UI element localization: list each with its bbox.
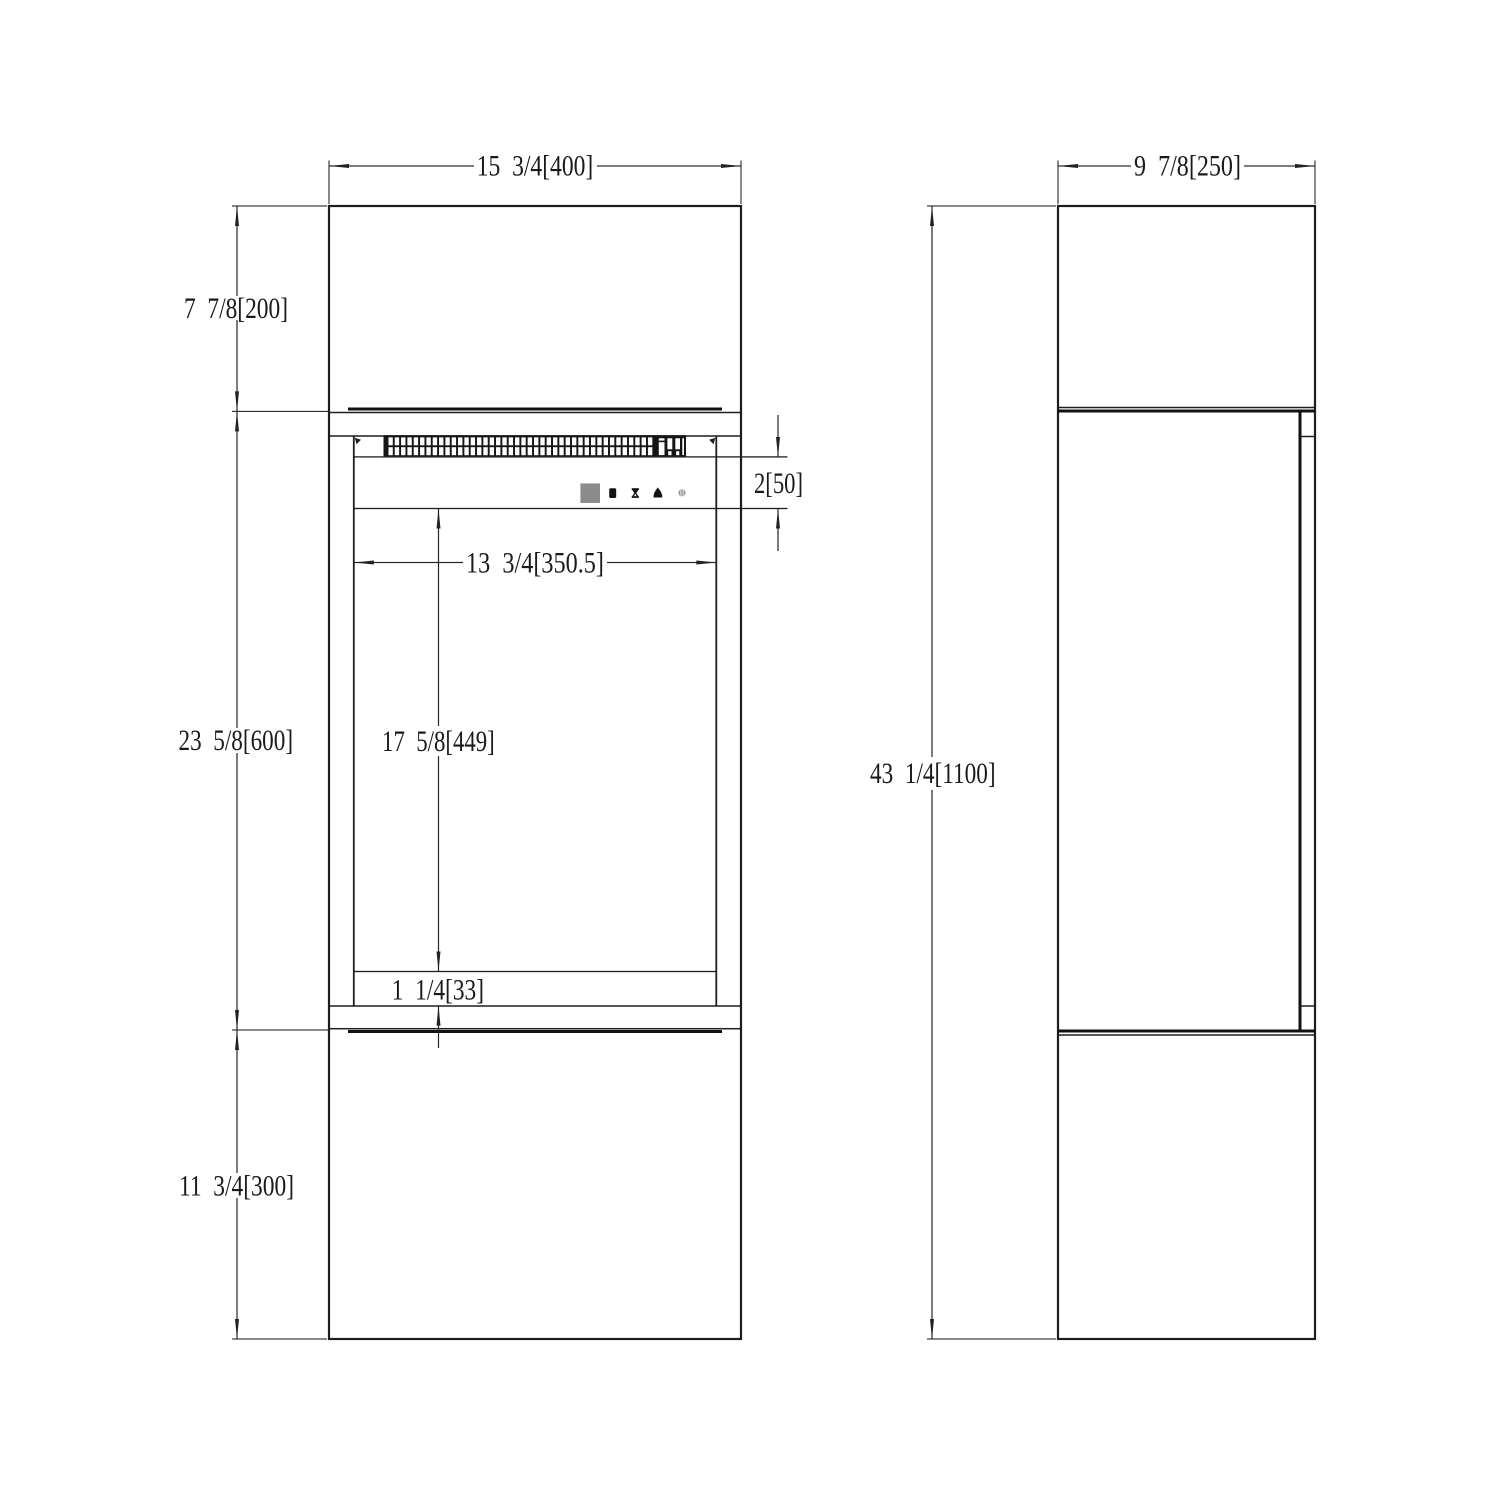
svg-text:9 7/8[250]: 9 7/8[250] [1134, 150, 1241, 183]
svg-text:23 5/8[600]: 23 5/8[600] [179, 724, 294, 757]
svg-text:2[50]: 2[50] [754, 467, 803, 500]
svg-text:43 1/4[1100]: 43 1/4[1100] [870, 757, 996, 790]
svg-text:1 1/4[33]: 1 1/4[33] [392, 973, 484, 1006]
svg-text:11 3/4[300]: 11 3/4[300] [179, 1169, 294, 1202]
svg-text:13 3/4[350.5]: 13 3/4[350.5] [466, 546, 604, 579]
svg-text:7 7/8[200]: 7 7/8[200] [184, 292, 288, 325]
svg-text:17 5/8[449]: 17 5/8[449] [382, 725, 495, 758]
svg-text:15 3/4[400]: 15 3/4[400] [477, 150, 594, 183]
